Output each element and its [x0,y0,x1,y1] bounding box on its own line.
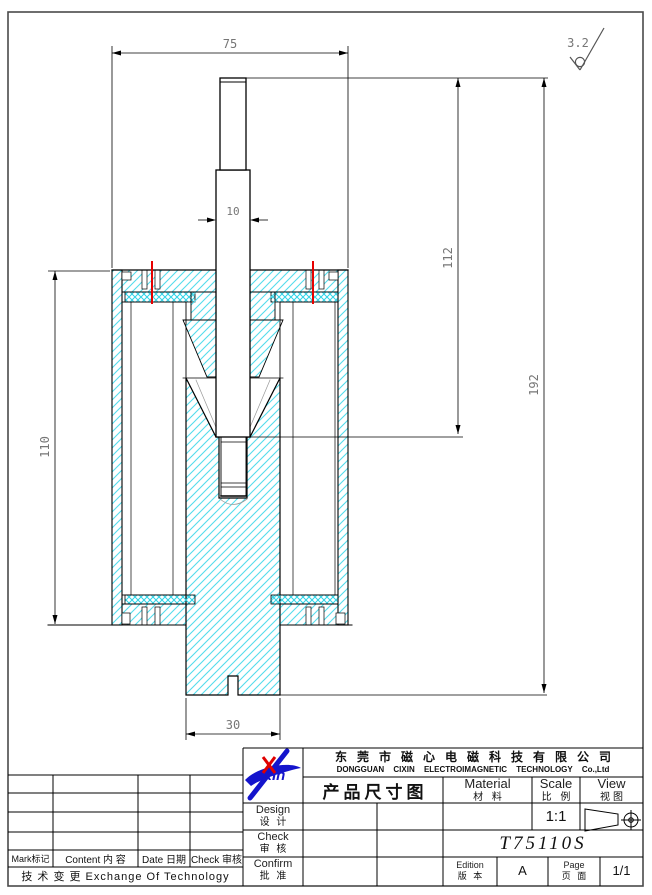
company-logo: XIn [245,751,301,798]
dim-total-height: 192 [527,78,547,693]
surface-roughness-symbol: 3.2 [567,28,604,70]
confirm-label-en: Confirm [254,858,293,871]
material-label-en: Material [464,777,510,792]
material-header: Material 材 料 [443,777,532,803]
confirm-cell: Confirm 批 准 [243,857,303,884]
confirm-label-cn: 批 准 [258,871,289,883]
projection-symbol [585,809,641,831]
view-label-cn: 视图 [597,792,626,804]
scale-value: 1:1 [532,803,580,830]
dim-body-height: 110 [38,271,58,624]
edition-header: Edition 版 本 [443,857,497,884]
design-label-cn: 设 计 [258,817,289,829]
view-label-en: View [598,777,626,792]
dim-112-label: 112 [441,247,455,269]
dim-192-label: 192 [527,374,541,396]
core-pin [220,437,247,505]
page-value: 1/1 [600,857,643,884]
check-label-cn: 审 核 [258,844,289,856]
solenoid-section-view [48,78,352,695]
edition-label-cn: 版 本 [456,871,485,881]
coil-window-right [280,302,338,595]
material-label-cn: 材 料 [470,792,505,804]
scale-header: Scale 比 例 [532,777,580,803]
rev-header-content: Content 内 容 [53,850,138,867]
view-header: View 视图 [580,777,643,803]
doc-title: 产品尺寸图 [303,777,443,803]
company-header: 东莞市磁心电磁科技有限公司 DONGGUAN CIXIN ELECTROIMAG… [303,748,643,777]
page-label-cn: 页 面 [560,871,589,881]
shell-wall-left [112,270,122,625]
coil-window-left [122,302,186,595]
drawing-sheet: 75 10 112 192 [0,0,652,895]
rev-footer: 技 术 变 更 Exchange Of Technology [8,867,243,885]
dim-30-label: 30 [226,718,240,732]
check-cell: Check 审 核 [243,830,303,857]
scale-label-en: Scale [540,777,573,792]
dim-110-label: 110 [38,436,52,458]
company-name-cn: 东莞市磁心电磁科技有限公司 [325,751,621,765]
part-number: T75110S [443,830,643,857]
design-label-en: Design [256,804,290,817]
design-cell: Design 设 计 [243,803,303,830]
check-label-en: Check [257,831,288,844]
dim-10-label: 10 [226,205,239,218]
dim-75-label: 75 [223,37,237,51]
rev-header-date: Date 日期 [138,850,190,867]
rev-header-mark: Mark标记 [8,850,53,867]
roughness-value: 3.2 [567,36,589,50]
dim-core-width: 30 [186,698,280,740]
plunger-rod [216,78,250,437]
company-name-en: DONGGUAN CIXIN ELECTROIMAGNETIC TECHNOLO… [337,765,610,774]
page-header: Page 页 面 [548,857,600,884]
page-label-en: Page [563,860,584,870]
scale-label-cn: 比 例 [539,792,574,804]
edition-value: A [497,857,548,884]
dim-stroke-height: 112 [441,78,461,434]
edition-label-en: Edition [456,860,484,870]
rev-header-check: Check 审核 [190,850,243,867]
stop-cone-left [183,320,216,377]
shell-wall-right [338,270,348,625]
stop-cone-right [250,320,283,377]
frustum-icon [585,809,618,831]
